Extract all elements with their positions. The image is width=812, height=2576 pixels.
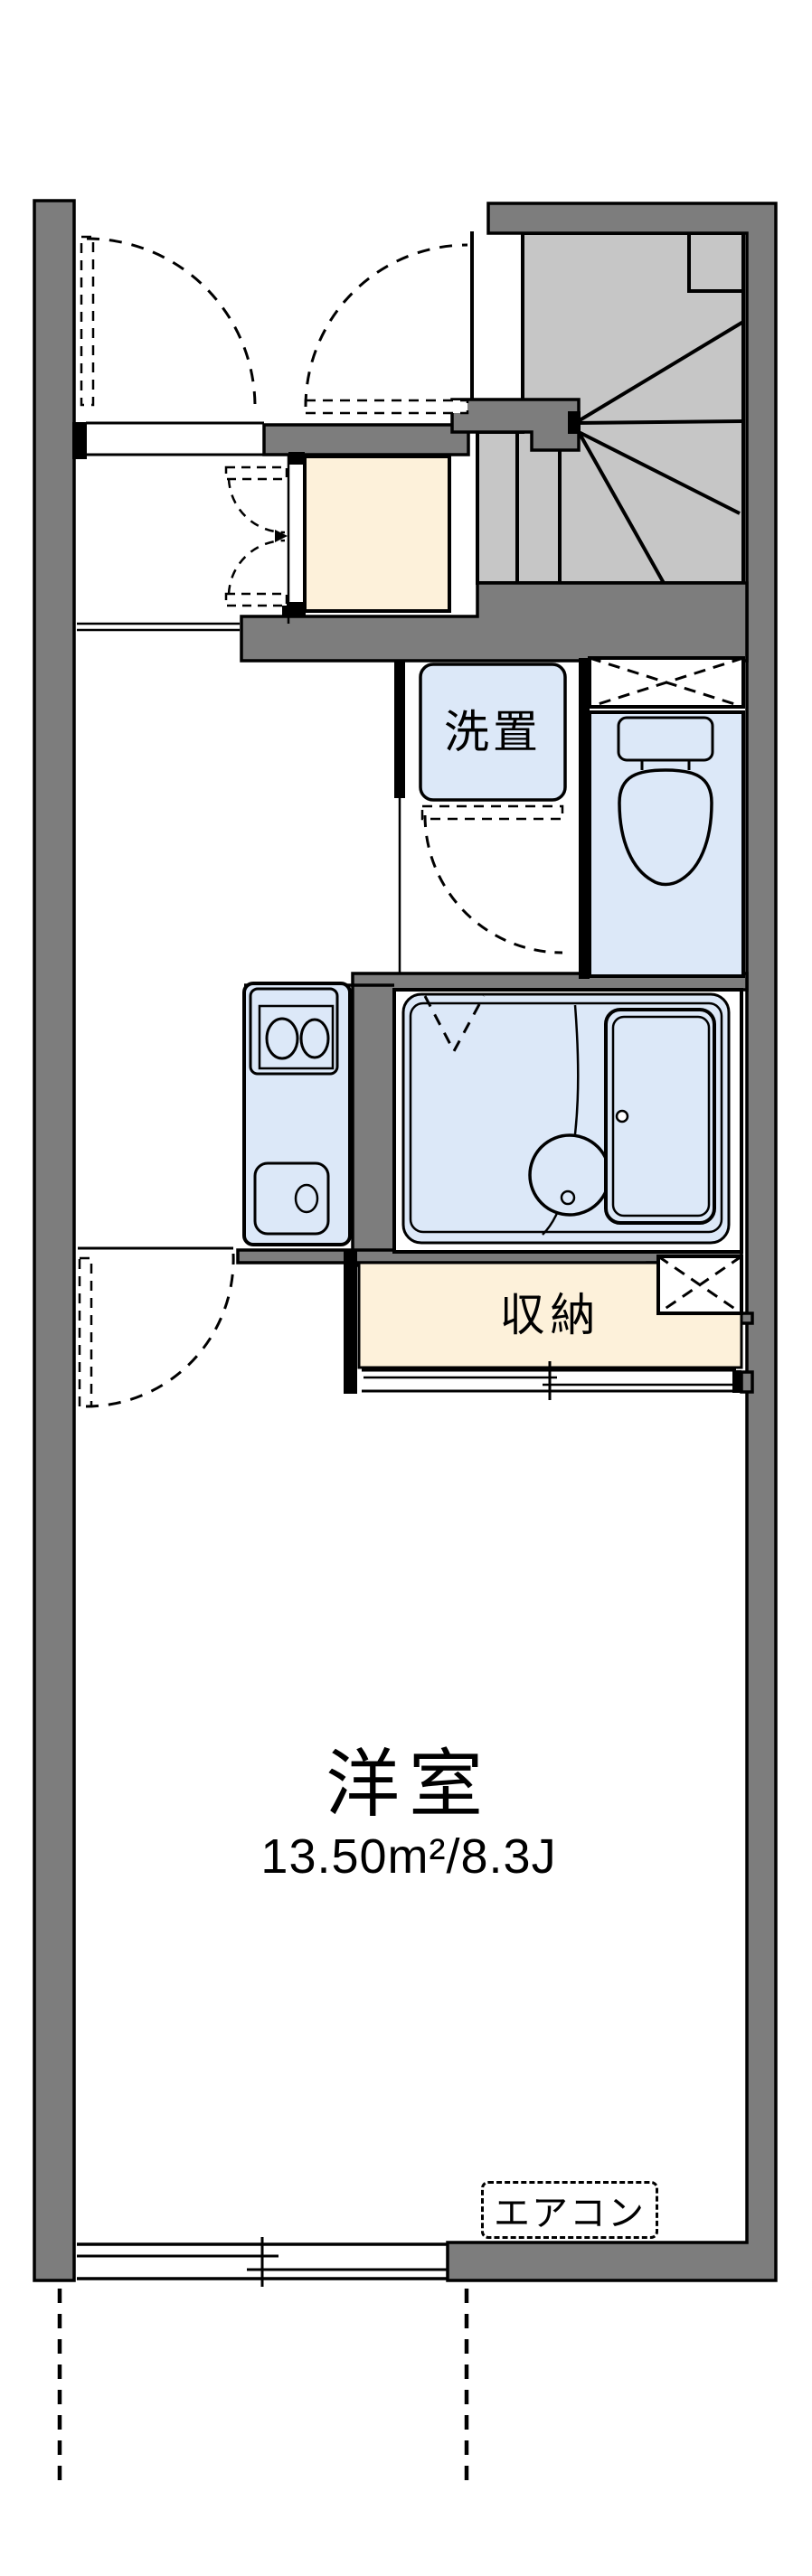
wall-left: [34, 201, 74, 2280]
stub-track-end: [732, 1370, 741, 1393]
floor-plan: 洗置 収納 洋室 13.50m²/8.3J エアコン: [0, 0, 812, 2576]
main-room-door-arc: [86, 1254, 233, 1406]
wall-entry-band: [264, 425, 468, 455]
closet-door-leaf-top: [226, 467, 287, 479]
stub-stair-hub: [568, 411, 581, 434]
toilet-room: [590, 658, 743, 976]
bath-washbasin-drain: [562, 1191, 574, 1204]
stub-storage-left-wall: [344, 1250, 357, 1394]
closet-door-leaf-bottom: [226, 594, 287, 606]
stub-hall-laundry: [394, 661, 405, 798]
entry-door-leaf-left: [81, 237, 93, 405]
entry-door-leaf-right: [306, 400, 467, 413]
stove-burner-right: [301, 1020, 328, 1058]
entry-door-arc-left: [87, 239, 255, 407]
entry-door-arc-right: [306, 245, 467, 407]
laundry-door-arc: [425, 815, 562, 953]
bathroom: [394, 990, 741, 1252]
boundary-lines: [60, 2289, 467, 2484]
storage-label: 収納: [359, 1263, 741, 1368]
genkan-entry-floor: [305, 456, 449, 611]
laundry-label: 洗置: [420, 664, 565, 800]
stairs-top-landing: [689, 233, 743, 291]
wall-track-notch: [741, 1372, 752, 1392]
aircon-label: エアコン: [494, 2184, 646, 2236]
main-room-door-leaf: [80, 1258, 91, 1406]
stove-burner-left: [267, 1019, 297, 1058]
toilet-tank: [618, 718, 713, 760]
laundry-door-leaf: [422, 806, 562, 819]
main-room-area: 13.50m²/8.3J: [74, 1828, 743, 1885]
sink-drain: [296, 1185, 317, 1212]
closet-door-arc-top: [229, 479, 285, 532]
bathtub-drain: [617, 1111, 628, 1122]
aircon-box: エアコン: [481, 2181, 658, 2239]
main-room-label: 洋室: [74, 1744, 743, 1826]
closet-door-arc-bottom: [229, 541, 285, 594]
